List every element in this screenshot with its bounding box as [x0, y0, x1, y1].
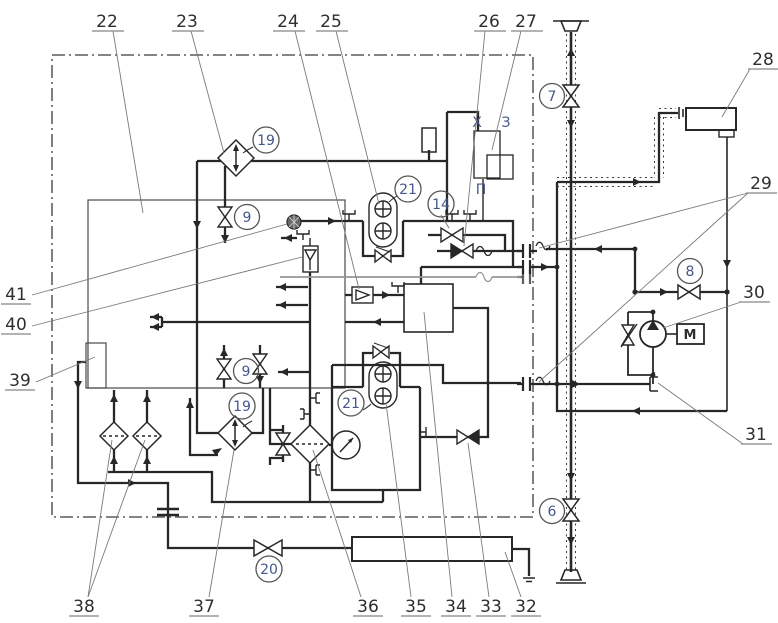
callouts: 22 23 24 25 26 27 28 29 30 31 32 33 34 3…	[1, 12, 778, 617]
circled-6: 6	[548, 504, 557, 520]
callout-26: 26	[478, 12, 500, 32]
component-39-block	[86, 343, 106, 388]
valve-9-lower-icon	[217, 359, 231, 379]
pilot-element	[422, 128, 436, 152]
callout-37: 37	[193, 597, 215, 617]
callout-36: 36	[357, 597, 379, 617]
callout-22: 22	[96, 12, 118, 32]
valve-7-icon	[563, 85, 579, 107]
callout-30: 30	[743, 283, 765, 303]
spray-nozzle-top	[553, 21, 589, 31]
callout-35: 35	[405, 597, 427, 617]
circled-19-upper: 19	[257, 133, 275, 149]
filters-38	[100, 422, 161, 450]
label-letter-z: З	[502, 115, 511, 131]
circled-9-upper: 9	[243, 210, 252, 226]
callout-leaders	[32, 31, 750, 597]
valve-9-upper-icon	[218, 207, 232, 227]
callout-33: 33	[480, 597, 502, 617]
circled-21-lower: 21	[342, 396, 360, 412]
callout-32: 32	[515, 597, 537, 617]
callout-38: 38	[73, 597, 95, 617]
component-24-throttle	[352, 287, 373, 303]
circled-19-lower: 19	[233, 399, 251, 415]
circled-7: 7	[548, 89, 557, 105]
callout-34: 34	[445, 597, 467, 617]
callout-24: 24	[277, 12, 299, 32]
callout-31: 31	[745, 425, 767, 445]
component-34-block	[404, 284, 453, 332]
circled-20: 20	[260, 562, 278, 578]
junction-dots	[555, 247, 730, 387]
callout-23: 23	[176, 12, 198, 32]
circled-9-lower: 9	[242, 364, 251, 380]
callout-27: 27	[515, 12, 537, 32]
relief-valve-icon	[621, 324, 637, 347]
drain-line-gray	[280, 273, 521, 282]
circled-8: 8	[686, 264, 695, 280]
heat-exchanger-19-lower	[218, 416, 252, 450]
component-41-breather	[287, 215, 301, 229]
callout-28: 28	[752, 50, 774, 70]
schematic-diagram: Х З П	[0, 0, 778, 623]
circled-14: 14	[432, 197, 450, 213]
callout-40: 40	[5, 315, 27, 335]
check-valve-lower-icon	[253, 354, 267, 374]
label-letter-p: П	[476, 182, 487, 198]
check-valve-26-icon	[451, 244, 473, 258]
callout-39: 39	[9, 371, 31, 391]
component-40-funnel	[303, 238, 318, 272]
check-valve-33-icon	[457, 430, 479, 444]
valve-8-icon	[678, 285, 700, 299]
pump-21-upper	[369, 193, 397, 262]
callout-41: 41	[5, 285, 27, 305]
flow-arrows	[74, 48, 731, 545]
valve-20-icon	[254, 540, 282, 556]
inner-unit-outline	[86, 200, 345, 388]
label-letter-m: М	[684, 328, 697, 343]
schematic-page: Х З П	[0, 0, 778, 623]
circled-21-upper: 21	[399, 182, 417, 198]
riser-and-motor-circuit	[536, 32, 727, 572]
callout-29: 29	[750, 174, 772, 194]
component-28-gun	[679, 107, 736, 137]
heat-exchanger-19-upper	[218, 140, 254, 176]
callout-25: 25	[320, 12, 342, 32]
circled-callout-texts: 7 6 8 9 9 14 19 19 20 21 21	[233, 89, 694, 578]
label-letter-x: Х	[472, 115, 482, 131]
valve-6-icon	[563, 499, 579, 521]
